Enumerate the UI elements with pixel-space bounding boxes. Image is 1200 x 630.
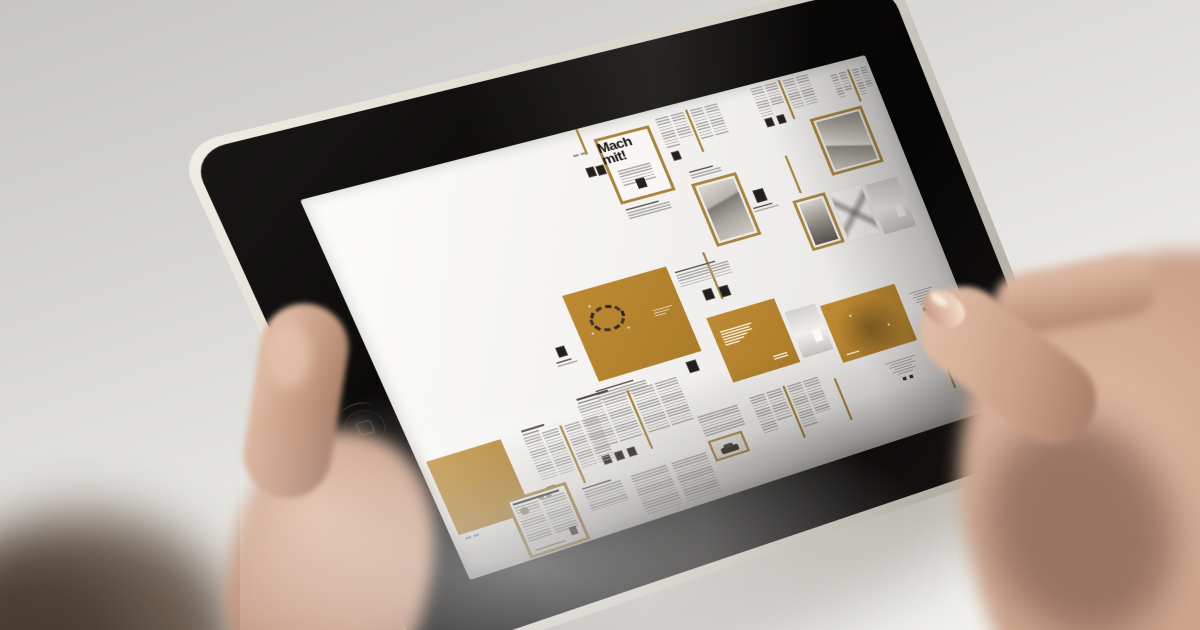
left-wrist-shadow [0, 560, 140, 630]
flatplan-text-spread[interactable] [652, 101, 735, 160]
page-white-rect [812, 329, 824, 343]
furniture-circle-photo [584, 298, 640, 342]
photo-scene: Machmit! [0, 0, 1200, 630]
cover-title: Machmit! [595, 135, 638, 167]
flatplan-orange-image-spread[interactable] [820, 284, 917, 363]
spread-white-text [720, 322, 758, 346]
flatplan-photo-page[interactable] [691, 172, 762, 247]
photo-speck [887, 323, 889, 325]
spread-white-text [653, 305, 674, 317]
credits-logos [902, 374, 913, 380]
framed-photo [816, 111, 877, 170]
page-white-rect [894, 203, 906, 216]
flatplan-caption [556, 357, 578, 368]
framed-photo [799, 198, 838, 245]
flatplan-spine-mark [575, 129, 588, 155]
spread-white-text [773, 352, 788, 360]
photo-speck [849, 315, 851, 317]
framed-photo [698, 178, 755, 241]
spread-white-text [847, 351, 860, 356]
flatplan-credits-page[interactable] [878, 350, 933, 398]
flatplan-image-thumbnail[interactable] [752, 188, 768, 203]
newspaper-footer-bar [535, 540, 565, 551]
flatplan-caption [582, 477, 629, 512]
newspaper-thumbnail [569, 526, 579, 536]
flatplan-spine-mark [785, 155, 802, 193]
caption-lines [583, 480, 628, 511]
credits-logos [922, 305, 933, 311]
flatplan-spine-mark [834, 378, 853, 420]
flatplan-spine-mark [939, 351, 956, 389]
flatplan-page-number [465, 533, 479, 539]
car-silhouette [720, 444, 739, 455]
flatplan-text-spread[interactable] [747, 375, 841, 450]
flatplan-image-thumbnail[interactable] [702, 288, 716, 301]
left-wrist [0, 515, 240, 630]
home-button-icon [355, 419, 376, 436]
tablet-device: Machmit! [300, 55, 1005, 580]
flatplan-caption [753, 201, 779, 214]
flatplan-photo-page[interactable] [809, 106, 883, 176]
flatplan-image-thumbnail[interactable] [555, 345, 568, 358]
flatplan-page-number [573, 152, 586, 157]
flatplan-image-thumbnail[interactable] [685, 359, 700, 373]
